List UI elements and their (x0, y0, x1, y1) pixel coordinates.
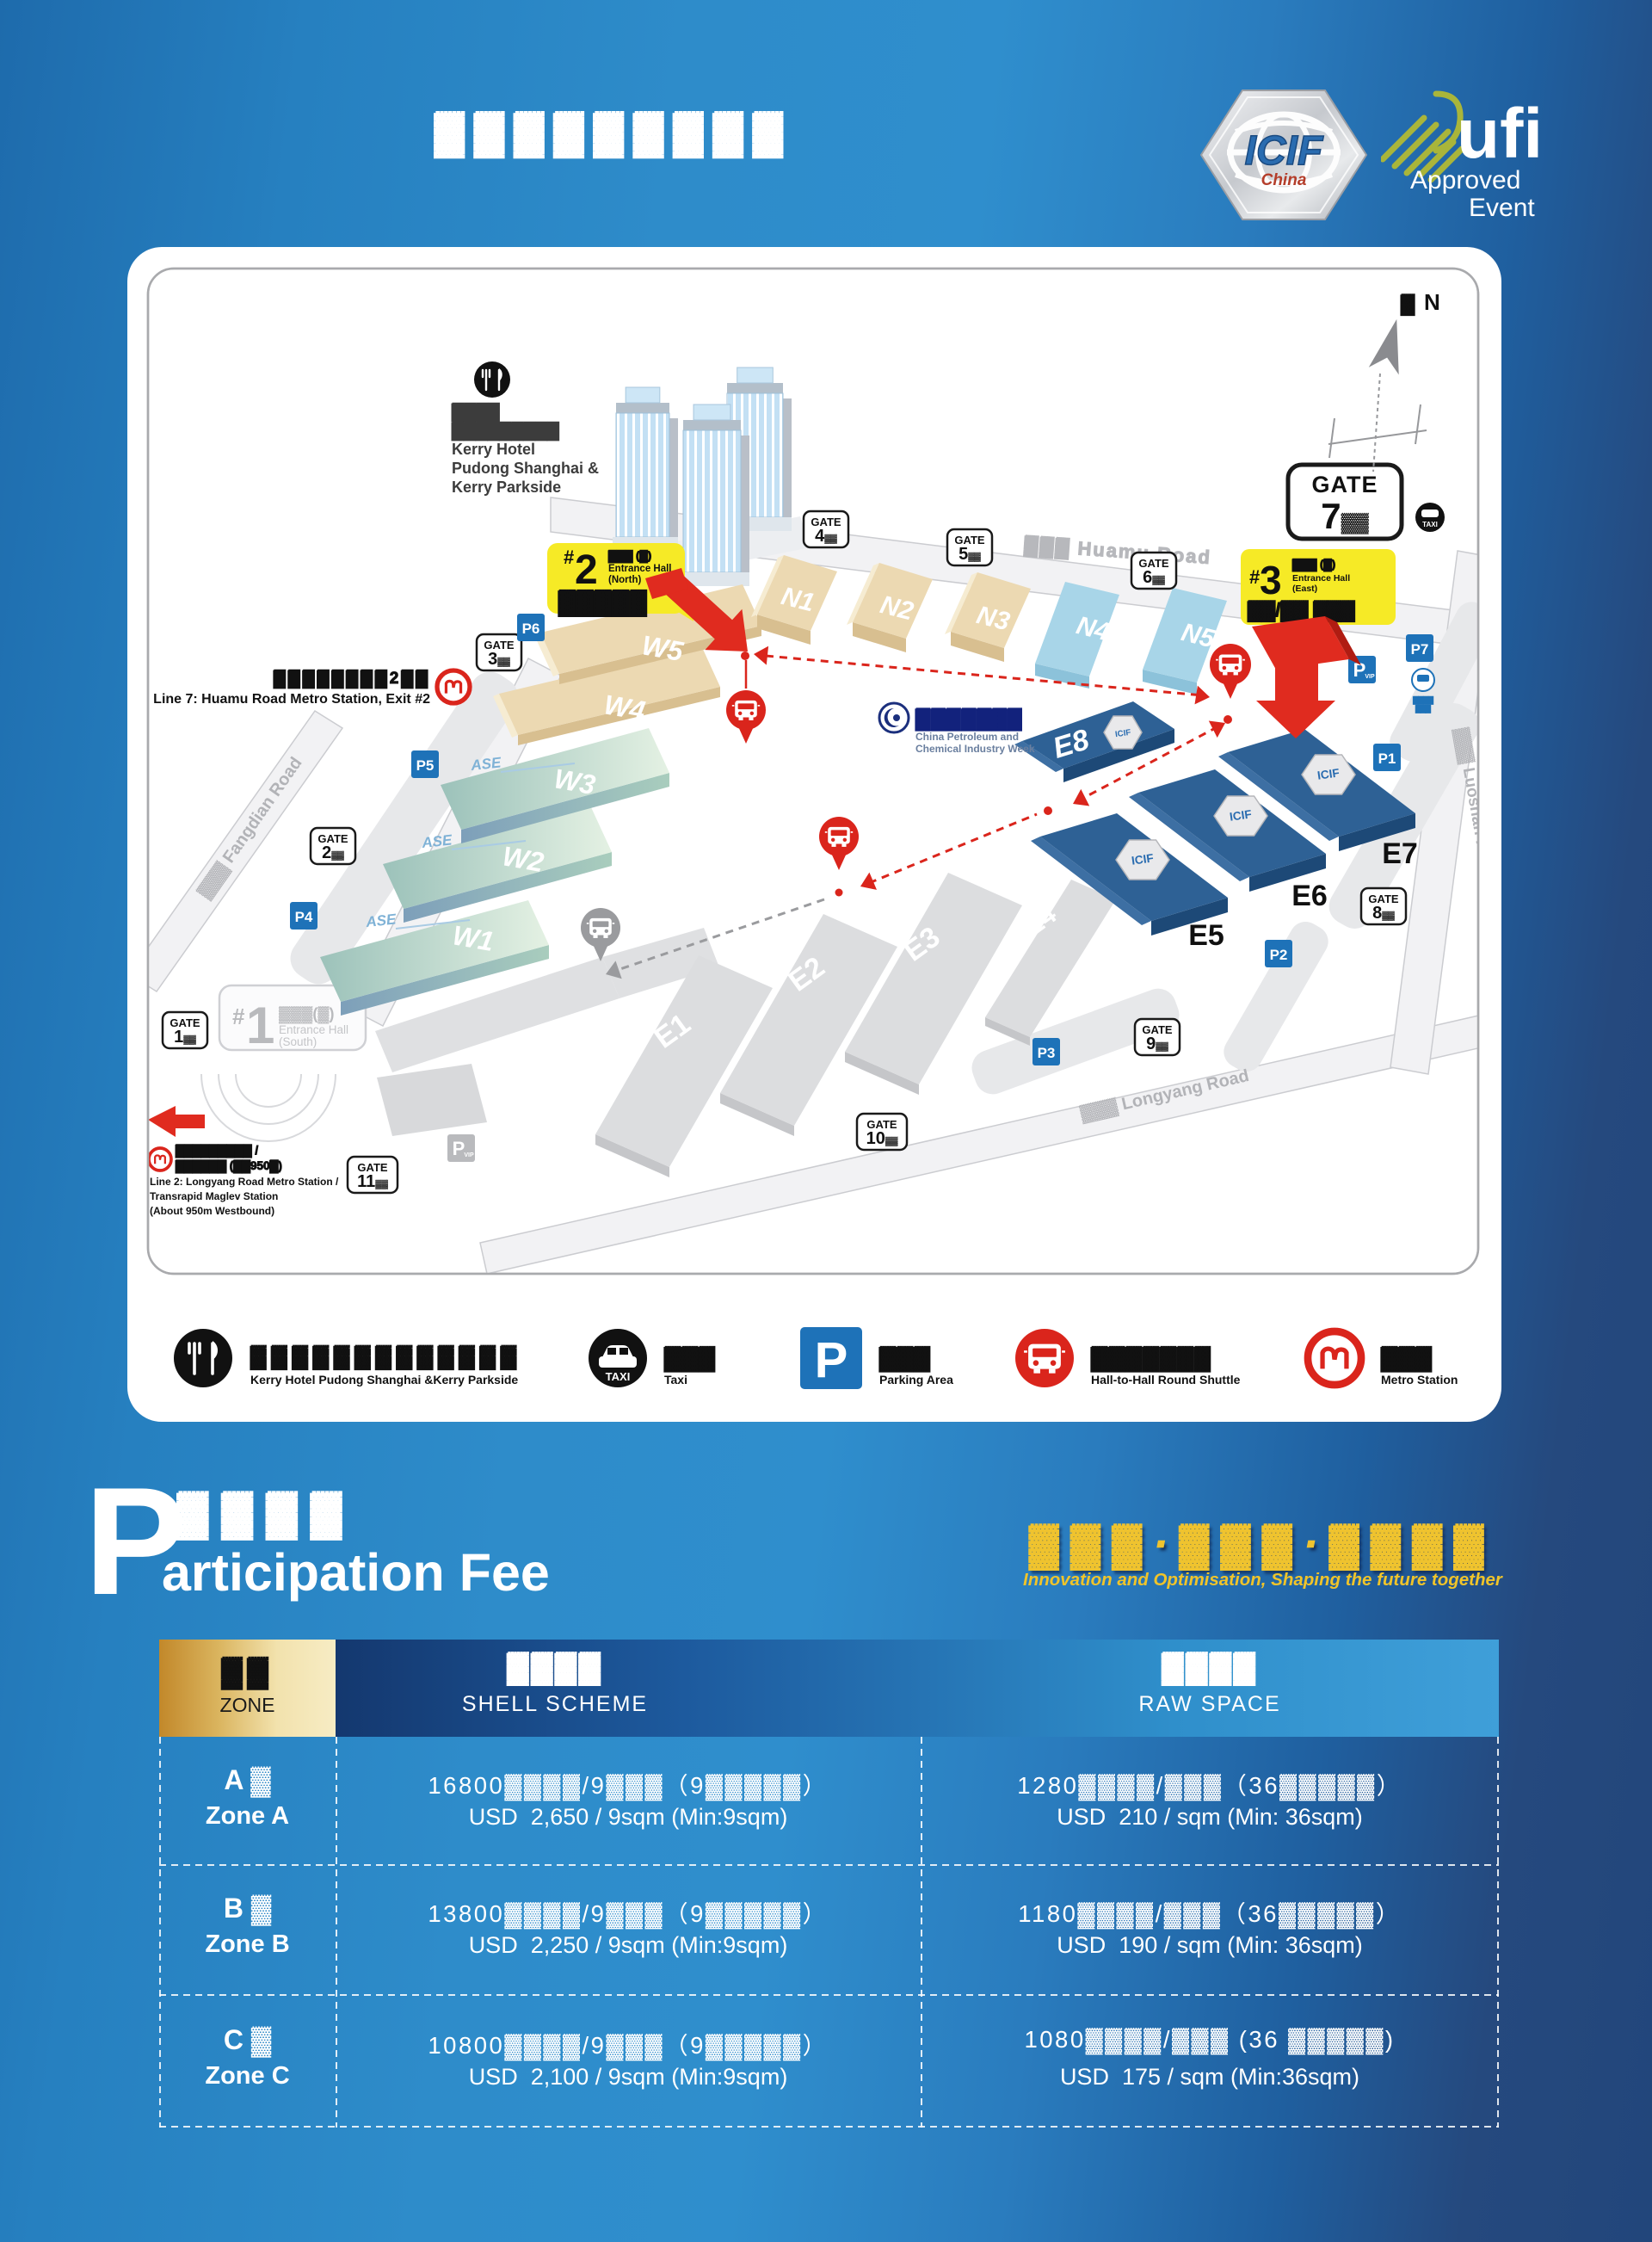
svg-text:▓▓▓ (▓): ▓▓▓ (▓) (1292, 558, 1335, 571)
svg-text:N: N (1424, 289, 1440, 315)
svg-text:(South): (South) (279, 1035, 317, 1048)
svg-text:TAXI: TAXI (1422, 521, 1438, 528)
svg-text:▓▓▓: ▓▓▓ (1381, 1344, 1433, 1372)
svg-text:▓▓▓▓▓▓ (▓▓950▓): ▓▓▓▓▓▓ (▓▓950▓) (176, 1159, 282, 1173)
svg-text:▓▓▓▓▓▓▓: ▓▓▓▓▓▓▓ (1091, 1344, 1211, 1372)
svg-text:P7: P7 (1411, 641, 1429, 658)
svg-text:P1: P1 (1378, 750, 1396, 767)
svg-text:ICIF: ICIF (1245, 128, 1324, 174)
svg-text:China Petroleum and: China Petroleum and (915, 731, 1019, 743)
svg-text:Pudong Shanghai &: Pudong Shanghai & (452, 460, 599, 477)
svg-text:Chemical Industry Week: Chemical Industry Week (915, 743, 1035, 755)
svg-text:Approved: Approved (1410, 166, 1520, 195)
svg-text:P3: P3 (1038, 1045, 1056, 1061)
svg-text:VIP: VIP (464, 1152, 474, 1158)
svg-text:▓▓▓ (▓): ▓▓▓ (▓) (608, 549, 651, 563)
svg-text:▓▓▓▓▓: ▓▓▓▓▓ (558, 589, 647, 617)
svg-text:P4: P4 (295, 909, 313, 925)
svg-text:▓▓▓▓▓▓▓: ▓▓▓▓▓▓▓ (915, 707, 1022, 731)
svg-text:Entrance Hall: Entrance Hall (608, 564, 672, 574)
svg-text:▓▓▓(▓): ▓▓▓(▓) (279, 1005, 334, 1024)
svg-text:(North): (North) (608, 575, 641, 585)
svg-text:ASE: ASE (364, 911, 397, 930)
svg-text:Kerry Parkside: Kerry Parkside (452, 479, 561, 496)
svg-text:E7: E7 (1382, 837, 1418, 870)
svg-text:▓▓▓: ▓▓▓ (1415, 705, 1431, 713)
svg-text:Taxi: Taxi (664, 1373, 687, 1387)
svg-text:Line 2: Longyang Road Metro St: Line 2: Longyang Road Metro Station / (150, 1176, 339, 1188)
svg-text:P: P (815, 1332, 848, 1388)
svg-text:▓▓▓▓▓▓▓▓2▓▓: ▓▓▓▓▓▓▓▓2▓▓ (274, 670, 430, 689)
svg-text:P6: P6 (522, 621, 540, 637)
svg-text:ASE: ASE (420, 831, 453, 851)
svg-text:Kerry Hotel: Kerry Hotel (452, 441, 535, 458)
svg-text:Entrance Hall: Entrance Hall (1292, 573, 1350, 584)
svg-text:#: # (564, 547, 574, 568)
svg-text:P2: P2 (1270, 947, 1288, 963)
svg-text:▓▓▓▓: ▓▓▓▓ (452, 403, 500, 422)
svg-text:Entrance Hall: Entrance Hall (279, 1023, 348, 1036)
svg-text:VIP: VIP (1365, 674, 1375, 680)
svg-text:▓▓▓▓: ▓▓▓▓ (1413, 696, 1433, 705)
svg-text:GATE: GATE (1312, 472, 1378, 497)
svg-text:Event: Event (1469, 194, 1535, 222)
svg-text:E6: E6 (1291, 880, 1328, 912)
svg-text:ufi: ufi (1457, 95, 1543, 173)
svg-text:▓▓▓▓▓▓▓▓▓▓▓▓▓: ▓▓▓▓▓▓▓▓▓▓▓▓▓ (250, 1344, 521, 1370)
svg-text:(About 950m Westbound): (About 950m Westbound) (150, 1205, 274, 1217)
svg-text:▓▓▓: ▓▓▓ (879, 1344, 931, 1372)
svg-text:(East): (East) (1292, 584, 1317, 594)
svg-text:China: China (1261, 171, 1307, 189)
svg-text:▓▓▓▓▓▓▓▓▓: ▓▓▓▓▓▓▓▓▓ (452, 422, 559, 441)
svg-text:#: # (1249, 566, 1260, 588)
svg-text:▓▓/▓▓ ▓▓▓: ▓▓/▓▓ ▓▓▓ (1248, 599, 1355, 622)
svg-text:#: # (232, 1004, 245, 1029)
svg-text:Parking Area: Parking Area (879, 1373, 953, 1387)
svg-text:Metro Station: Metro Station (1381, 1373, 1458, 1387)
svg-text:P: P (453, 1138, 465, 1159)
svg-text:E5: E5 (1188, 919, 1224, 952)
svg-text:Line 7: Huamu Road Metro Stati: Line 7: Huamu Road Metro Station, Exit #… (153, 692, 430, 707)
svg-text:▓▓▓ Fangdian Road: ▓▓▓ Fangdian Road (195, 754, 307, 902)
svg-text:3: 3 (1260, 558, 1282, 602)
svg-text:Transrapid Maglev Station: Transrapid Maglev Station (150, 1190, 278, 1202)
svg-text:P5: P5 (416, 757, 435, 774)
svg-text:1: 1 (246, 997, 274, 1054)
svg-text:2: 2 (575, 547, 598, 593)
svg-text:▓: ▓ (1401, 293, 1415, 316)
svg-text:▓▓▓: ▓▓▓ (664, 1344, 716, 1372)
svg-text:TAXI: TAXI (606, 1370, 631, 1383)
svg-text:Hall-to-Hall Round Shuttle: Hall-to-Hall Round Shuttle (1091, 1373, 1241, 1387)
svg-text:ASE: ASE (469, 754, 502, 774)
svg-text:▓▓▓▓▓▓▓▓▓ /: ▓▓▓▓▓▓▓▓▓ / (176, 1144, 258, 1158)
svg-text:Kerry Hotel Pudong Shanghai &K: Kerry Hotel Pudong Shanghai &Kerry Parks… (250, 1373, 518, 1387)
